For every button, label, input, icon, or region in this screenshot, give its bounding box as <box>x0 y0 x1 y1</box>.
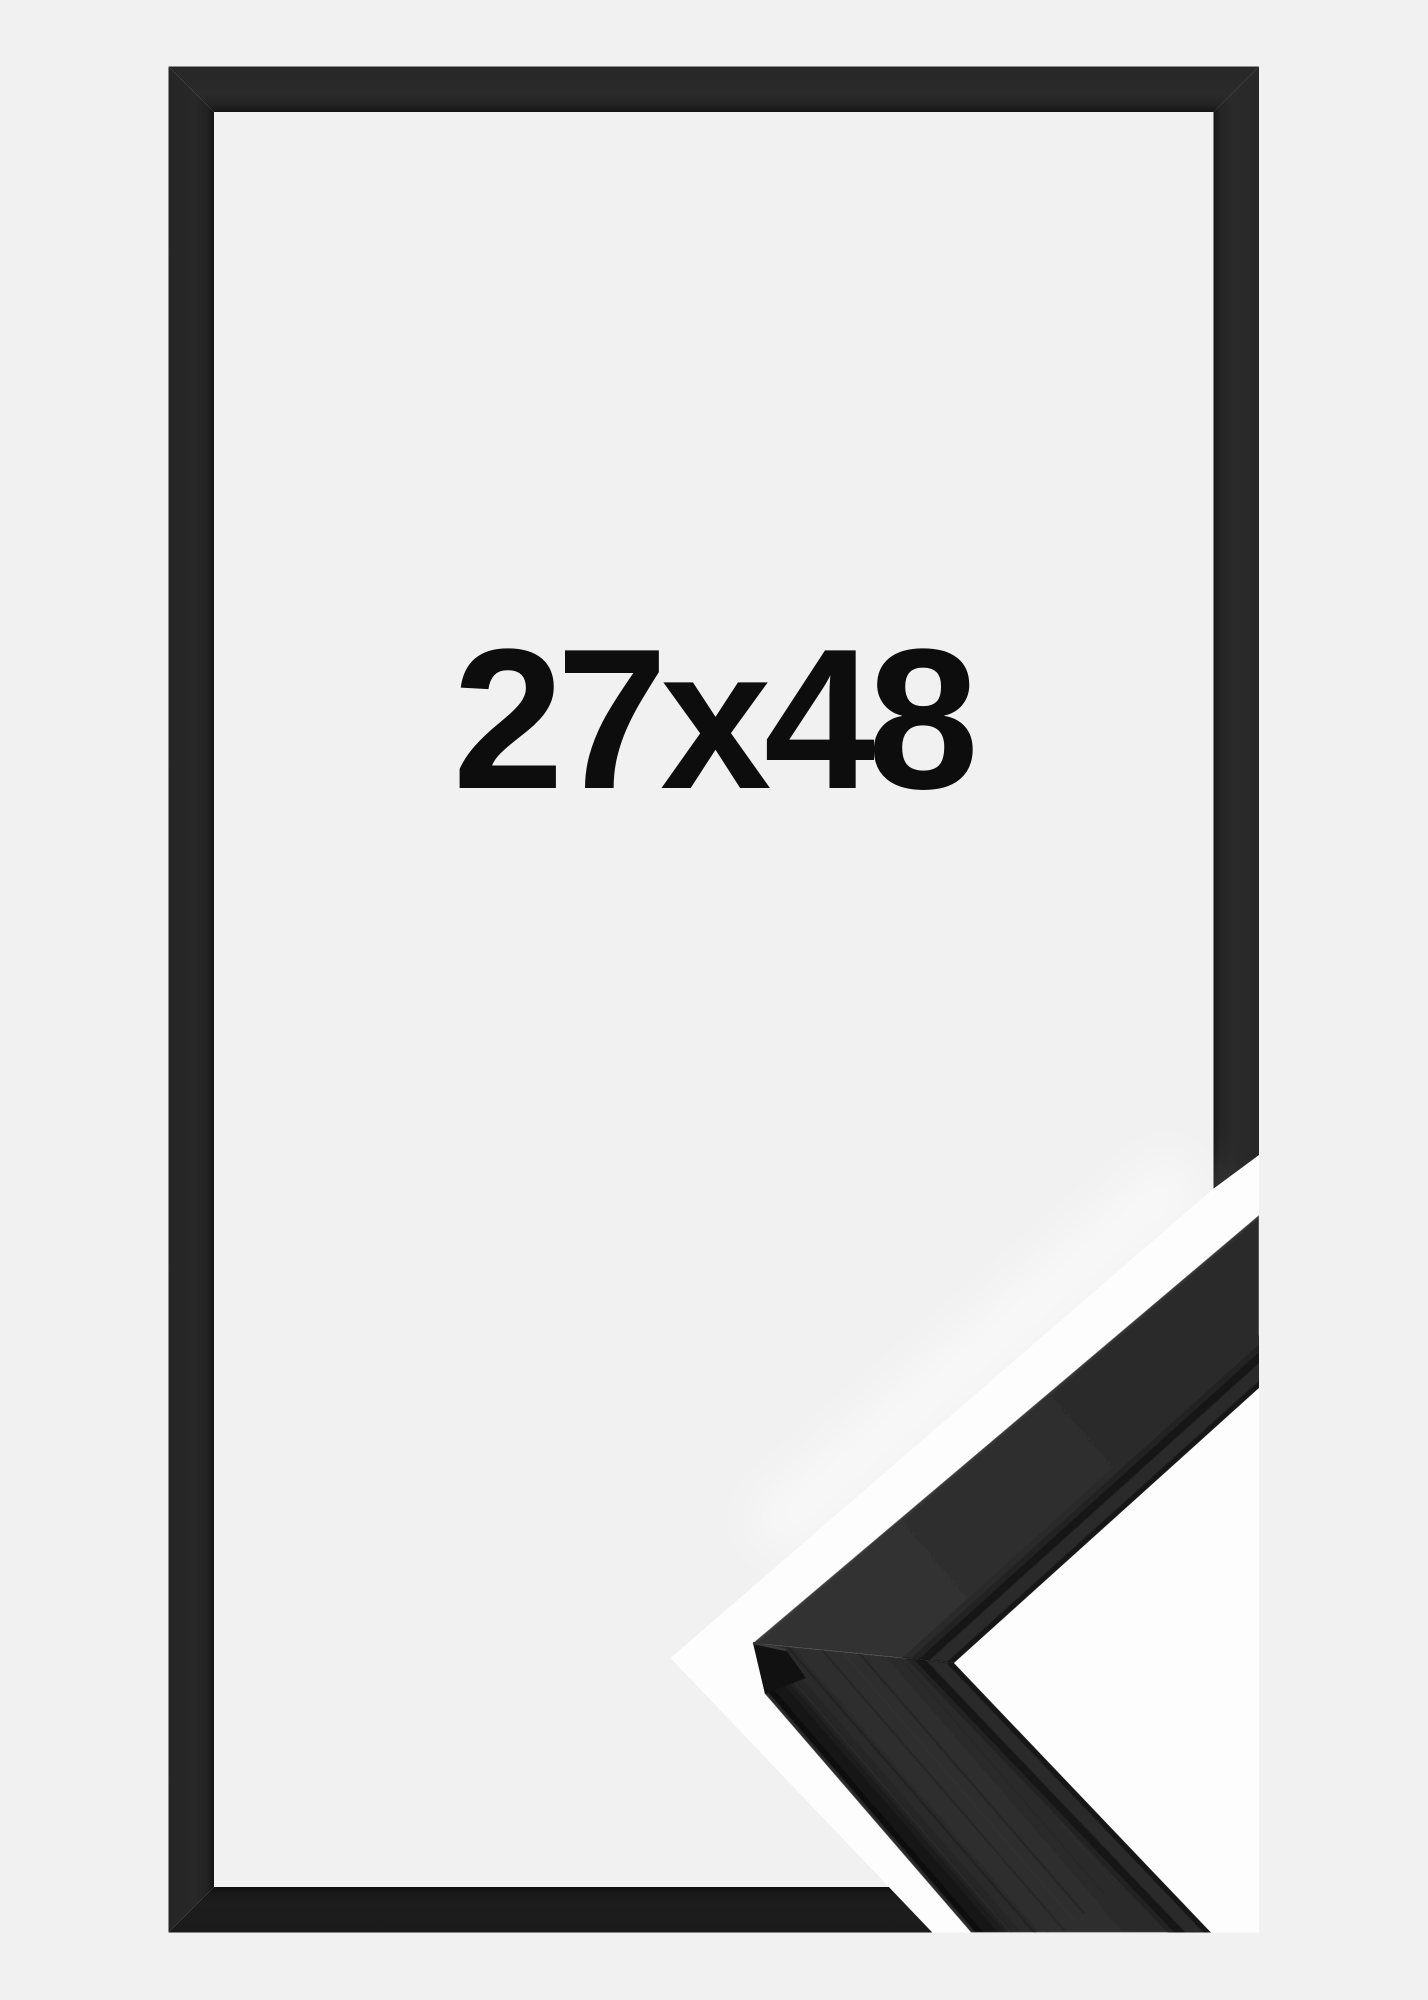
svg-text:27x48: 27x48 <box>453 608 974 831</box>
